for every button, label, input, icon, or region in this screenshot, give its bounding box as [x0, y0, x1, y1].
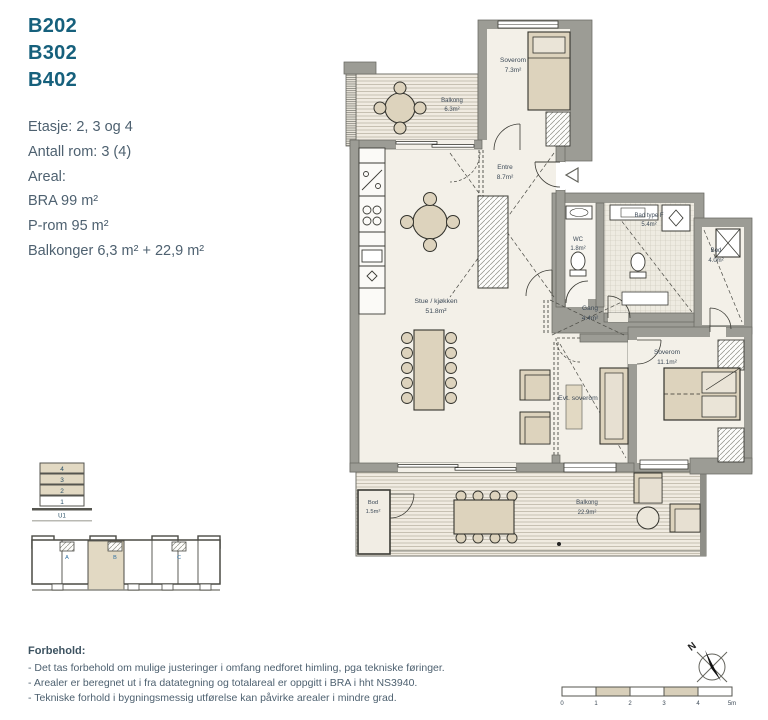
room-area: 5.4m²	[641, 222, 656, 228]
room-label: Evt. soverom	[558, 395, 598, 402]
wardrobe	[718, 428, 744, 462]
room-label: Balkong	[441, 98, 463, 104]
basement-label: U1	[58, 514, 66, 520]
room-label: Stue / kjøkken	[414, 298, 457, 305]
rug	[566, 385, 582, 429]
key-plan: A B C	[32, 536, 220, 590]
dining-table-long	[402, 330, 457, 410]
floorplan-sheet: B202 B302 B402 Etasje: 2, 3 og 4 Antall …	[0, 0, 768, 720]
floor-number: 4	[60, 466, 64, 473]
room-area: 8.7m²	[497, 174, 514, 181]
scale-tick: 4	[696, 701, 700, 707]
room-label: Entre	[497, 164, 513, 171]
room-label: Soverom	[654, 349, 680, 356]
side-table	[637, 507, 659, 529]
bed-double	[664, 368, 740, 420]
room-label: Bod	[368, 500, 378, 506]
scale-tick: 2	[628, 701, 632, 707]
room-label: WC	[573, 237, 584, 243]
armchair-seat	[525, 375, 550, 400]
north-label: N	[686, 640, 698, 653]
floor-number: 1	[60, 499, 64, 506]
stair-core	[172, 542, 186, 551]
room-area: 7.3m²	[505, 67, 522, 74]
entrance-label: A	[65, 555, 69, 561]
section-diagram: 4 3 2 1 U1	[32, 463, 92, 522]
scale-tick: 5m	[728, 701, 736, 707]
entrance-label: C	[177, 555, 181, 561]
floor-plan: Balkong 6.3m² Soverom 7.3m² Entre 8.7m² …	[0, 0, 768, 720]
room-label: Gang	[582, 305, 598, 312]
drain-dot	[557, 542, 561, 546]
daybed-mattress	[605, 373, 623, 439]
floor-plan-drawing: Balkong 6.3m² Soverom 7.3m² Entre 8.7m² …	[0, 0, 768, 720]
floor-number: 3	[60, 477, 64, 484]
armchair-seat	[525, 417, 550, 444]
stair-core	[108, 542, 122, 551]
room-label: Balkong	[576, 500, 598, 506]
room-area: 51.8m²	[425, 308, 447, 315]
room-area: 4.0m²	[708, 258, 723, 264]
disclaimer: Forbehold: - Det tas forbehold om mulige…	[28, 645, 488, 707]
scale-bar: 0 1 2 3 4 5m	[560, 687, 736, 707]
kitchen-counter	[359, 148, 385, 314]
entrance-label: B	[113, 555, 117, 561]
scale-tick: 1	[594, 701, 598, 707]
disclaimer-title: Forbehold:	[28, 645, 488, 657]
room-area: 22.9m²	[578, 510, 597, 516]
wardrobe	[478, 196, 508, 288]
room-area: 11.1m²	[657, 359, 678, 366]
disclaimer-line: - Det tas forbehold om mulige justeringe…	[28, 661, 488, 676]
privacy-screen	[346, 74, 356, 146]
stair-core	[60, 542, 74, 551]
room-area: 1.5m²	[366, 509, 381, 515]
floor-number: 2	[60, 488, 64, 495]
entrance-arrow-icon	[566, 168, 578, 182]
room-label: Bad type F	[634, 213, 663, 219]
room-area: 4.4m²	[582, 315, 599, 322]
wardrobe	[718, 340, 744, 370]
disclaimer-line: - Arealer er beregnet ut i fra datategni…	[28, 676, 488, 691]
north-arrow: N	[686, 640, 727, 682]
scale-tick: 0	[560, 701, 564, 707]
room-area: 6.3m²	[444, 107, 459, 113]
room-label: Soverom	[500, 57, 526, 64]
room-area: 1.8m²	[570, 246, 585, 252]
scale-tick: 3	[662, 701, 666, 707]
room-label: Bod	[711, 248, 722, 254]
bed-single	[528, 32, 570, 110]
disclaimer-line: - Tekniske forhold i bygningsmessig utfø…	[28, 691, 488, 706]
